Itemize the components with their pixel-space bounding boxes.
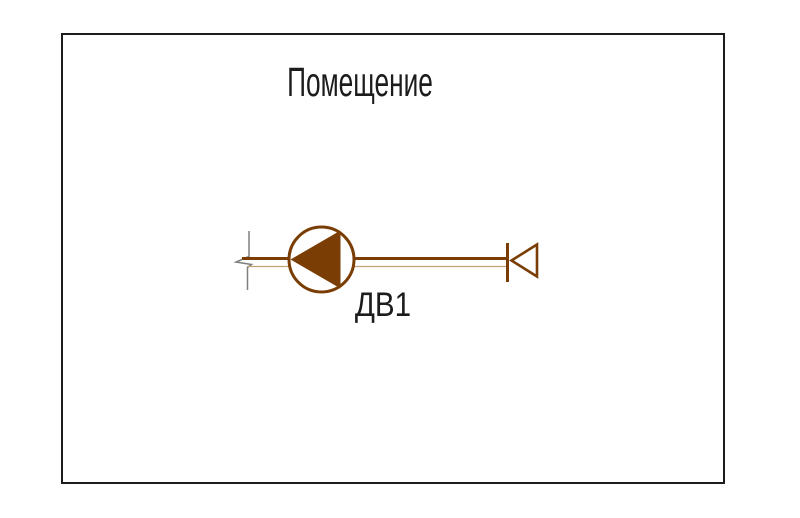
duct-break-icon: [236, 231, 252, 290]
air-valve-triangle: [512, 245, 538, 277]
air-valve-icon: [508, 243, 538, 282]
fan-tag-label: ДВ1: [355, 288, 411, 322]
room-label: Помещение: [287, 62, 433, 103]
fan-icon: [289, 227, 354, 292]
drawing-canvas: Помещение ДВ1: [0, 0, 800, 518]
